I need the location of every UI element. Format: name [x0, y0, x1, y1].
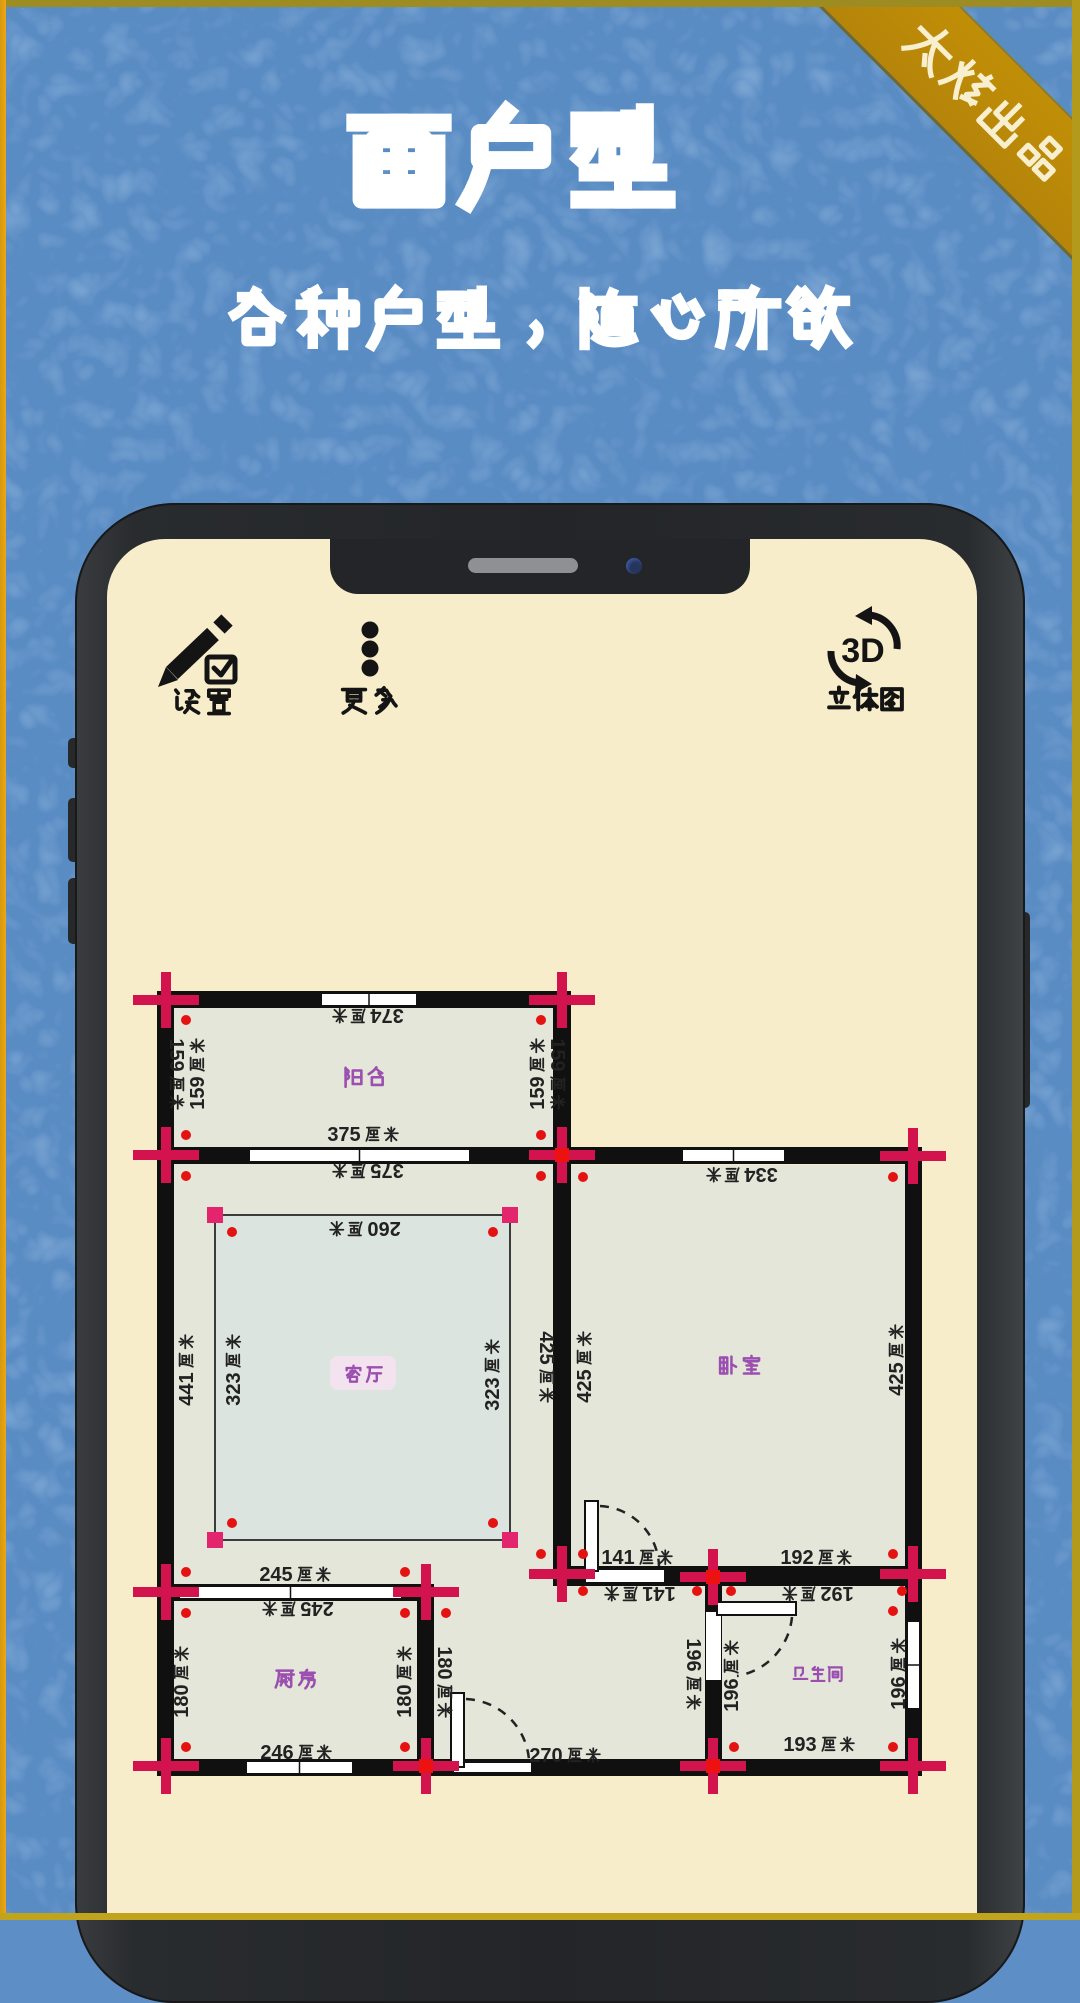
svg-text:334: 334 [743, 1163, 777, 1185]
svg-text:441: 441 [176, 1372, 198, 1405]
svg-text:180: 180 [171, 1684, 193, 1717]
svg-text:375: 375 [327, 1124, 360, 1146]
svg-text:270: 270 [529, 1745, 562, 1767]
svg-text:159: 159 [165, 1038, 187, 1071]
svg-text:245: 245 [300, 1597, 333, 1619]
svg-text:425: 425 [574, 1369, 596, 1402]
svg-text:141: 141 [642, 1582, 675, 1604]
svg-text:159: 159 [187, 1076, 209, 1109]
svg-text:323: 323 [223, 1372, 245, 1405]
svg-text:159: 159 [546, 1038, 568, 1071]
svg-text:375: 375 [370, 1159, 403, 1181]
svg-text:425: 425 [886, 1362, 908, 1395]
svg-text:3D: 3D [841, 632, 884, 670]
svg-text:159: 159 [527, 1076, 549, 1109]
svg-text:196: 196 [682, 1638, 704, 1671]
svg-text:180: 180 [433, 1646, 455, 1679]
svg-text:425: 425 [535, 1331, 557, 1364]
svg-text:323: 323 [482, 1377, 504, 1410]
svg-text:246: 246 [260, 1742, 293, 1764]
svg-text:180: 180 [394, 1684, 416, 1717]
svg-text:141: 141 [601, 1547, 634, 1569]
svg-text:196: 196 [888, 1676, 910, 1709]
svg-text:245: 245 [259, 1564, 292, 1586]
svg-text:192: 192 [820, 1582, 853, 1604]
svg-text:374: 374 [369, 1004, 403, 1026]
svg-text:192: 192 [780, 1547, 813, 1569]
svg-text:260: 260 [367, 1217, 400, 1239]
svg-text:193: 193 [783, 1734, 816, 1756]
svg-text:196: 196 [721, 1678, 743, 1711]
